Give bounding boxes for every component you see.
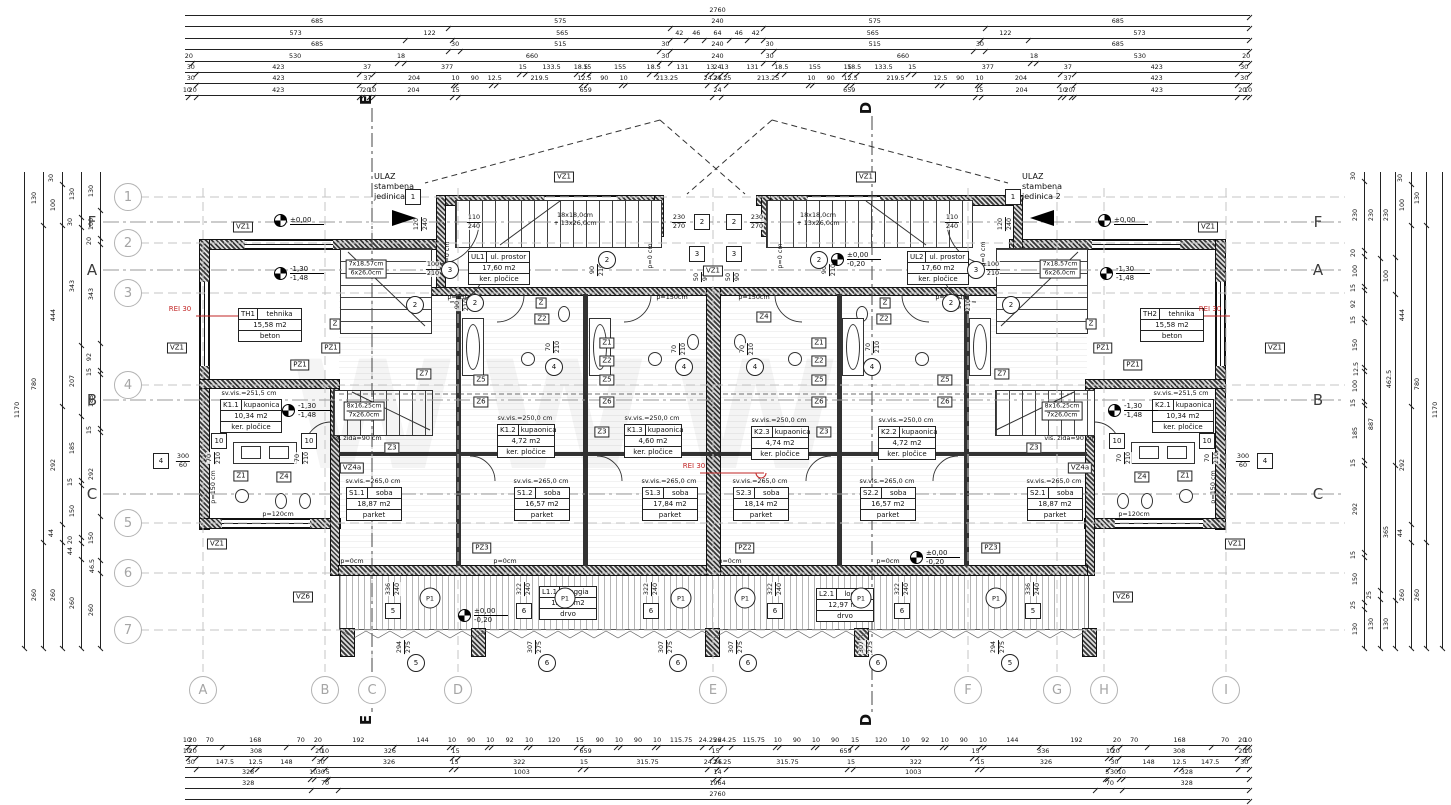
door-marker-square: 1 [405, 189, 421, 205]
dimension-segment: 423 [197, 86, 360, 96]
dimension-segment: 204 [374, 86, 453, 96]
material-tag: Z [330, 319, 341, 330]
opening-dimension: 70210 [1116, 452, 1132, 464]
door-marker-circle: 2 [466, 294, 484, 312]
door-marker-square: 2 [726, 214, 742, 230]
dimension-segment: 660 [775, 52, 1030, 62]
dimension-segment: 343 [69, 227, 82, 345]
dimension-segment: 92 [88, 343, 101, 370]
grid-letter: F [88, 213, 97, 231]
dimension-segment: 659 [459, 747, 713, 757]
dimension-segment: 336 [978, 747, 1108, 757]
window-symbol [1216, 282, 1225, 366]
post-marker: P1 [555, 588, 576, 609]
dimension-segment: 30 [1239, 758, 1251, 768]
stair-note: 18x18,0cm+ 13x26,0cm [796, 211, 839, 227]
dimension-segment: 308 [197, 747, 316, 757]
door-marker-circle: 6 [538, 654, 556, 672]
sink-fixture [915, 352, 929, 366]
dimension-column: 1170 [12, 172, 25, 648]
dimension-column: 130780260 [31, 172, 44, 648]
dimension-segment: 659 [459, 86, 713, 96]
dimension-segment: 685 [185, 40, 449, 50]
dimension-row: 32810305100314100353010328 [185, 768, 1250, 778]
material-tag: Z4 [756, 312, 771, 323]
plan-note: p=0cm [876, 557, 899, 565]
plan-note: sv.vis.=250,0 cm [498, 414, 553, 422]
vanity-basin [241, 446, 261, 459]
door-marker-circle: 2 [810, 251, 828, 269]
entrance-arrow-icon [392, 210, 416, 226]
plan-note: vis. zida=90 cm [330, 434, 381, 442]
dimension-segment: 292 [50, 406, 63, 525]
wall-segment [200, 380, 339, 388]
level-symbol-icon [910, 551, 923, 564]
dimension-segment: 155 [785, 63, 845, 73]
dimension-segment: 100 [1383, 257, 1396, 294]
level-marker: ±0,00 [274, 214, 324, 227]
room-info-box: S2.3soba18,14 m2parket [733, 487, 789, 521]
grid-bubble: E [699, 676, 727, 704]
material-tag: Z3 [384, 443, 399, 454]
rei-label: REI 30 [169, 305, 191, 313]
dimension-segment: 326 [983, 758, 1108, 768]
dimension-segment: 240 [671, 52, 764, 62]
dimension-segment: 148 [258, 758, 315, 768]
opening-dimension: 5090 [725, 272, 741, 282]
level-symbol-icon [831, 253, 844, 266]
terrain-post [341, 629, 354, 656]
dimension-segment: 260 [50, 542, 63, 648]
opening-dimension: 100210 [426, 261, 440, 277]
material-tag: Z4 [1134, 472, 1149, 483]
dimension-segment: 168 [223, 736, 287, 746]
room-info-box: K1.1kupaonica10,34 m2ker. pločice [220, 399, 282, 433]
dimension-segment: 131 [657, 63, 708, 73]
dimension-segment: 328 [1123, 779, 1250, 789]
door-marker-square: 2 [694, 214, 710, 230]
dimension-segment: 100 [1352, 256, 1365, 286]
dimension-segment: 530 [193, 52, 398, 62]
grid-letter: B [87, 391, 97, 409]
sink-fixture [648, 352, 662, 366]
dimension-column: 1170 [1430, 172, 1443, 648]
grid-bubble: F [954, 676, 982, 704]
level-symbol-icon [274, 267, 287, 280]
plan-note: p=150 cm [209, 470, 217, 503]
toilet-fixture [558, 306, 570, 322]
dimension-segment: 377 [374, 63, 520, 73]
vanity-basin [1139, 446, 1159, 459]
material-tag: Z3 [594, 427, 609, 438]
dimension-row: 205301866030240306601853020 [185, 52, 1250, 62]
dimension-segment: 326 [326, 758, 451, 768]
dimension-segment: 575 [449, 17, 671, 27]
dimension-segment: 30 [974, 40, 986, 50]
dimension-column: 230100462.5365130 [1383, 172, 1396, 648]
rei-label: REI 30 [683, 462, 705, 470]
grid-bubble: H [1090, 676, 1118, 704]
partition-wall [339, 452, 1087, 456]
dimension-segment: 150 [1352, 557, 1365, 602]
dimension-segment: 24.25 [718, 74, 727, 84]
dimension-segment: 260 [1414, 542, 1427, 648]
dimension-segment: 30 [185, 758, 197, 768]
dimension-column: 302302010015921515012.510015185152921515… [1352, 172, 1365, 648]
window-symbol [1092, 240, 1180, 249]
material-tag: Z5 [599, 375, 614, 386]
dimension-segment: 133.5 [858, 63, 910, 73]
dimension-segment: 18.5 [851, 63, 858, 73]
dimension-segment: 155 [590, 63, 650, 73]
door-marker-circle: 5 [1001, 654, 1019, 672]
bathtub-inner [973, 324, 987, 370]
dimension-segment: 308 [1120, 747, 1239, 757]
grid-letter: A [1313, 261, 1323, 279]
dimension-segment: 130 [1352, 609, 1365, 648]
dimension-segment: 70 [196, 736, 223, 746]
dimension-segment: 30 [185, 63, 197, 73]
level-symbol-icon [1100, 267, 1113, 280]
sink-fixture [521, 352, 535, 366]
post-marker: P1 [851, 588, 872, 609]
dimension-segment: 46 [687, 29, 705, 39]
dimension-segment: 573 [1029, 29, 1250, 39]
window-symbol [222, 519, 310, 528]
dimension-column: 1301002034392151851529215046.5260 [88, 172, 101, 648]
terrain-post [706, 629, 719, 656]
opening-dimension: 70210 [294, 452, 310, 464]
door-marker-circle: 4 [675, 358, 693, 376]
opening-dimension: 230270 [672, 214, 686, 230]
opening-dimension: 322240 [894, 582, 910, 596]
dimension-row: 68530515302403051530685 [185, 40, 1250, 50]
dimension-segment: 260 [1399, 542, 1412, 648]
dimension-segment: 100 [50, 184, 63, 225]
dimension-row: 1020308201032615659156591533610203082010 [185, 747, 1250, 757]
material-tag: Z4 [276, 472, 291, 483]
material-tag: Z1 [599, 338, 614, 349]
dimension-row: 3042337204109012.5219.512.59010213.2524.… [185, 74, 1250, 84]
dimension-segment: 322 [854, 758, 978, 768]
material-tag: Z7 [994, 369, 1009, 380]
bathtub-inner [846, 324, 860, 370]
dimension-segment: 322 [457, 758, 581, 768]
dimension-row: 2760 [185, 6, 1250, 16]
dimension-segment: 185 [69, 416, 82, 480]
material-tag: PZ3 [472, 543, 491, 554]
material-tag: PZ3 [981, 543, 1000, 554]
dimension-segment: 192 [1040, 736, 1113, 746]
grid-letter: F [1314, 213, 1323, 231]
toilet-fixture [299, 493, 311, 509]
dimension-segment: 30 [69, 217, 82, 227]
dimension-segment: 1003 [720, 768, 1106, 778]
dimension-segment: 444 [50, 225, 63, 406]
material-tag: Z2 [811, 356, 826, 367]
dimension-segment: 515 [461, 40, 660, 50]
grid-bubble: 5 [114, 509, 142, 537]
post-marker: P1 [986, 588, 1007, 609]
dimension-segment: 90 [780, 736, 814, 746]
loggia-deck [339, 575, 1089, 630]
dimension-segment: 44 [50, 524, 63, 542]
dimension-segment: 148 [1120, 758, 1177, 768]
dimension-segment: 20 [189, 747, 197, 757]
door-marker-circle: 2 [942, 294, 960, 312]
opening-dimension: 100210 [986, 261, 1000, 277]
dimension-segment: 70 [1212, 736, 1239, 746]
opening-dimension: 30060 [176, 453, 190, 469]
dimension-segment: 24 [713, 86, 722, 96]
dimension-segment: 10 [1246, 736, 1250, 746]
opening-dimension: 322240 [767, 582, 783, 596]
dimension-segment: 573 [185, 29, 406, 39]
material-tag: VZ1 [1225, 539, 1245, 550]
dimension-segment: 530 [1037, 52, 1242, 62]
grid-bubble: 4 [114, 371, 142, 399]
dimension-segment: 315.75 [587, 758, 708, 768]
dimension-segment: 147.5 [1182, 758, 1239, 768]
plan-note: sv.vis.=251,5 cm [1154, 389, 1209, 397]
door-marker-square: 3 [726, 246, 742, 262]
dimension-segment: 230 [1352, 181, 1365, 250]
dimension-row: 2760 [185, 790, 1250, 800]
level-symbol-icon [1108, 404, 1121, 417]
plan-note: p=150 cm [1209, 470, 1217, 503]
plan-note: sv.vis.=265,0 cm [346, 477, 401, 485]
dimension-segment: 10 [1246, 86, 1250, 96]
door-marker-circle: 4 [863, 358, 881, 376]
opening-dimension: 336240 [385, 582, 401, 596]
dimension-segment: 10 [1246, 747, 1250, 757]
room-info-box: S2.2soba16,57 m2parket [860, 487, 916, 521]
dimension-segment: 423 [1075, 86, 1238, 96]
dimension-segment: 70 [1121, 736, 1148, 746]
plan-note: sv.vis.=250,0 cm [752, 416, 807, 424]
dimension-segment: 30 [1352, 172, 1365, 181]
dimension-segment: 20 [69, 537, 82, 544]
vanity-basin [1167, 446, 1187, 459]
dimension-segment: 887 [1368, 258, 1381, 590]
opening-dimension: 110240 [945, 214, 959, 230]
sink-fixture [1179, 489, 1193, 503]
grid-letter: C [87, 485, 97, 503]
plan-note: p=0cm [718, 557, 741, 565]
plan-note: sv.vis.=265,0 cm [733, 477, 788, 485]
plan-note: p=0cm [493, 557, 516, 565]
grid-bubble: 1 [114, 183, 142, 211]
dimension-segment: 25 [1368, 590, 1381, 599]
dimension-segment: 219.5 [853, 74, 938, 84]
bathtub-inner [466, 324, 480, 370]
dimension-segment: 565 [764, 29, 982, 39]
dimension-segment: 100 [1352, 371, 1365, 401]
plan-note: sv.vis.=250,0 cm [879, 416, 934, 424]
room-info-box: S1.2soba16,57 m2parket [514, 487, 570, 521]
material-tag: Z3 [816, 427, 831, 438]
opening-dimension: 294275 [990, 640, 1006, 654]
grid-letter: A [87, 261, 97, 279]
opening-dimension: 70210 [671, 343, 687, 355]
material-tag: PZ1 [290, 360, 309, 371]
dimension-segment: 18 [398, 52, 405, 62]
opening-dimension: 70210 [865, 341, 881, 353]
dimension-segment: 192 [322, 736, 395, 746]
dimension-segment: 30 [50, 172, 63, 184]
grid-bubble: G [1043, 676, 1071, 704]
dimension-segment: 365 [1383, 465, 1396, 600]
dimension-segment: 37 [1060, 74, 1074, 84]
room-info-box: UL1ul. prostor17,60 m2ker. pločice [468, 251, 530, 285]
material-tag: PZ2 [735, 543, 754, 554]
dimension-segment: 92 [1352, 290, 1365, 318]
stair-note: 8x16,25cm7x26,0cm [344, 402, 385, 421]
dimension-row: 32870196470328 [185, 779, 1250, 789]
toilet-fixture [1117, 493, 1129, 509]
dimension-segment: 219.5 [497, 74, 582, 84]
material-tag: Z6 [473, 397, 488, 408]
dimension-segment: 122 [982, 29, 1029, 39]
entrance-label: ULAZstambenajedinica 2 [1022, 172, 1062, 202]
dimension-segment: 423 [1075, 63, 1238, 73]
dimension-segment: 780 [31, 225, 44, 542]
dimension-segment: 659 [722, 86, 976, 96]
level-symbol-icon [458, 609, 471, 622]
material-tag: PZ1 [1123, 360, 1142, 371]
dimension-segment: 37 [360, 63, 374, 73]
dimension-segment: 30 [1109, 758, 1121, 768]
dimension-segment: 18 [1031, 52, 1038, 62]
level-marker: ±0,00-0,20 [458, 607, 508, 624]
material-tag: VZ1 [233, 222, 253, 233]
dimension-segment: 46.5 [88, 560, 101, 573]
plan-note: p=120cm [262, 510, 293, 518]
door-marker-square: 10 [301, 433, 317, 449]
room-info-box: UL2ul. prostor17,60 m2ker. pločice [907, 251, 969, 285]
dimension-segment: 120 [531, 736, 577, 746]
dimension-segment: 204 [981, 74, 1060, 84]
dimension-column: 3010044429244260 [50, 172, 63, 648]
dimension-segment: 70 [312, 779, 339, 789]
dimension-segment: 20 [1113, 736, 1121, 746]
room-info-box: K1.3kupaonica4,60 m2ker. pločice [624, 424, 682, 458]
stair-note: 8x16,25cm7x26,0cm [1042, 402, 1083, 421]
material-tag: Z6 [937, 397, 952, 408]
plan-note: p=150cm [656, 293, 687, 301]
material-tag: VZ6 [293, 592, 313, 603]
dimension-segment: 30 [315, 758, 327, 768]
door-marker-circle: 6 [669, 654, 687, 672]
dimension-row: 1020423720102041565924659152041020742320… [185, 86, 1250, 96]
grid-bubble: 6 [114, 559, 142, 587]
door-marker-square: 6 [767, 603, 783, 619]
dimension-segment: 24.25 [718, 758, 727, 768]
grid-bubble: 3 [114, 279, 142, 307]
grid-bubble: D [444, 676, 472, 704]
opening-dimension: 322240 [643, 582, 659, 596]
dimension-segment: 444 [1399, 225, 1412, 406]
dimension-segment: 64 [705, 29, 730, 39]
door-marker-square: 10 [211, 433, 227, 449]
level-marker: -1,30-1,48 [1108, 402, 1158, 419]
dimension-column: 130780260 [1414, 172, 1427, 648]
door-marker-square: 5 [1025, 603, 1041, 619]
material-tag: Z3 [1026, 443, 1041, 454]
opening-dimension: 70210 [739, 343, 755, 355]
dimension-segment: 115.75 [732, 736, 776, 746]
room-info-box: S2.1soba18,87 m2parket [1027, 487, 1083, 521]
opening-dimension: 336240 [1025, 582, 1041, 596]
dimension-segment: 147.5 [197, 758, 254, 768]
room-info-box: S1.1soba18,87 m2parket [346, 487, 402, 521]
plan-note: p=0cm [340, 557, 363, 565]
dimension-segment: 90 [621, 736, 655, 746]
material-tag: VZ1 [554, 172, 574, 183]
opening-dimension: 120240 [997, 217, 1013, 231]
dimension-segment: 260 [31, 542, 44, 648]
dimension-segment: 423 [1075, 74, 1239, 84]
dimension-segment: 1170 [12, 172, 25, 648]
dimension-segment: 133.5 [526, 63, 578, 73]
material-tag: Z2 [534, 314, 549, 325]
dimension-segment: 780 [1414, 225, 1427, 542]
grid-bubble: 2 [114, 229, 142, 257]
dimension-segment: 90 [587, 74, 622, 84]
grid-bubble: B [311, 676, 339, 704]
material-tag: PZ1 [1093, 343, 1112, 354]
dimension-segment: 515 [775, 40, 974, 50]
door-marker-square: 5 [385, 603, 401, 619]
material-tag: Z1 [233, 471, 248, 482]
dimension-segment: 44 [1399, 524, 1412, 542]
door-marker-square: 1 [1005, 189, 1021, 205]
dimension-segment: 575 [764, 17, 986, 27]
toilet-fixture [1141, 493, 1153, 509]
plan-note: sv.vis.=251,5 cm [222, 389, 277, 397]
grid-letter: B [1313, 391, 1323, 409]
dimension-column: 23088725130 [1368, 172, 1381, 648]
level-marker: ±0,00 [1098, 214, 1148, 227]
window-symbol [245, 240, 333, 249]
room-info-box: TH1tehnika15,58 m2beton [238, 308, 302, 342]
material-tag: Z6 [599, 397, 614, 408]
room-info-box: K2.2kupaonica4,72 m2ker. pločice [878, 426, 936, 460]
material-tag: VZ1 [167, 343, 187, 354]
level-marker: -1,30-1,48 [282, 402, 332, 419]
toilet-fixture [275, 493, 287, 509]
dimension-segment: 20 [314, 736, 322, 746]
dimension-segment: 90 [583, 736, 617, 746]
grid-bubble: C [358, 676, 386, 704]
room-info-box: K2.3kupaonica4,74 m2ker. pločice [751, 426, 809, 460]
dimension-segment: 2760 [185, 790, 1250, 800]
dimension-segment: 122 [406, 29, 453, 39]
level-symbol-icon [1098, 214, 1111, 227]
dimension-segment: 100 [1399, 184, 1412, 225]
dimension-segment: 213.25 [727, 74, 810, 84]
material-tag: Z2 [599, 356, 614, 367]
material-tag: Z [1086, 319, 1097, 330]
rei-label: REI 30 [1199, 305, 1221, 313]
material-tag: Z2 [876, 314, 891, 325]
material-tag: VZ1 [1265, 343, 1285, 354]
dimension-segment: 377 [915, 63, 1061, 73]
dimension-segment: 130 [31, 172, 44, 225]
dimension-segment: 326 [327, 747, 453, 757]
opening-dimension: 30060 [1236, 453, 1250, 469]
door-marker-circle: 4 [545, 358, 563, 376]
